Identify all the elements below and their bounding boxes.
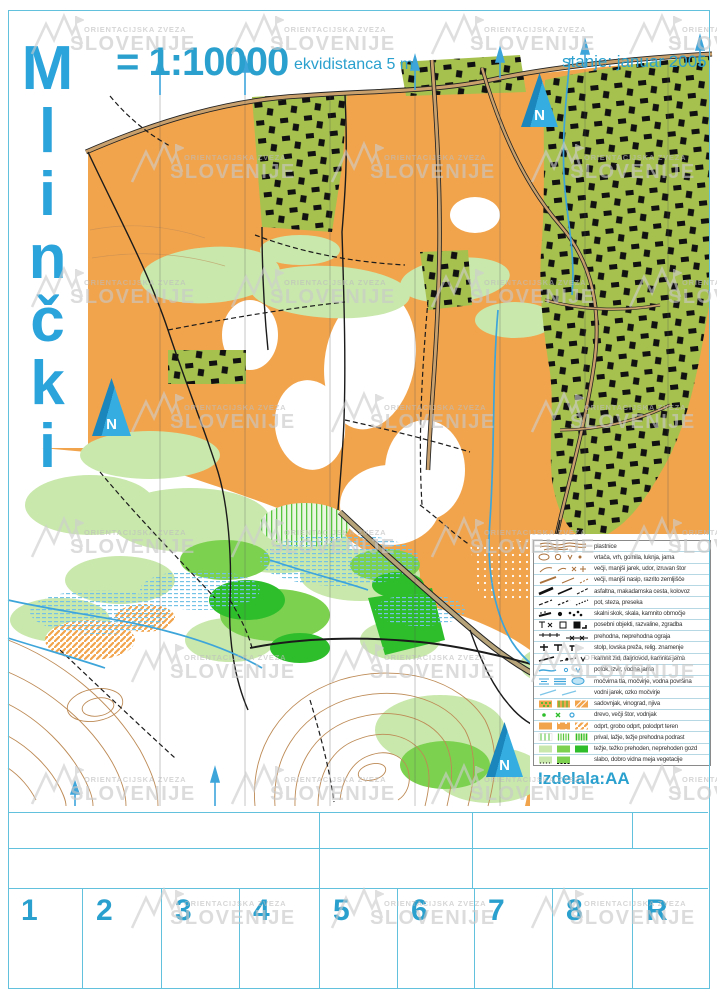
control-number: 8 [553, 889, 632, 928]
ditch-icon [534, 687, 594, 697]
legend-row: slabo, dobro vidna meja vegetacije [534, 755, 710, 765]
legend-row: odprt, grobo odprt, polodprt teren [534, 721, 710, 732]
objects-icon [534, 620, 594, 630]
control-cell: 6 [398, 889, 475, 988]
control-cell: 8 [553, 889, 633, 988]
control-number: 2 [83, 889, 161, 928]
legend-row: drevo, večji štor, vodnjak [534, 710, 710, 721]
undergrowth-icon [534, 732, 594, 742]
control-cell: R [633, 889, 708, 988]
legend-row: asfaltna, makadamska cesta, kolovoz [534, 586, 710, 597]
gully-icon [534, 564, 594, 574]
rock-icon [534, 609, 594, 619]
legend-box: plastnice vrtača, vrh, gomila, luknja, j… [533, 540, 711, 766]
map-scale: = 1:10000 [116, 40, 288, 85]
stream-icon [534, 665, 594, 675]
control-number: 7 [475, 889, 552, 928]
control-number: 6 [398, 889, 474, 928]
legend-row: večji, manjši jarek, udor, izruvan štor [534, 564, 710, 575]
contours-icon [534, 541, 594, 551]
paths-icon [534, 597, 594, 607]
card-cell [320, 813, 473, 848]
control-cell: 2 [83, 889, 162, 988]
roads-icon [534, 586, 594, 596]
card-cell [633, 813, 708, 848]
card-cell [320, 849, 473, 888]
control-cell: 3 [162, 889, 240, 988]
forest-icon [534, 744, 594, 754]
card-subheader-row [8, 848, 708, 888]
card-number-row: 1 2 3 4 5 6 7 8 R [8, 888, 708, 988]
equidistance-label: ekvidistanca 5 m [294, 56, 413, 74]
control-cell: 4 [240, 889, 320, 988]
legend-row: prival, lažje, težje prehodna podrast [534, 732, 710, 743]
card-cell [8, 813, 320, 848]
legend-row: potok, izvir, vodna jama [534, 665, 710, 676]
wall-icon [534, 654, 594, 664]
control-number: 5 [320, 889, 397, 928]
tree-icon [534, 710, 594, 720]
open-land-icon [534, 721, 594, 731]
control-number: R [633, 889, 708, 928]
control-number: 4 [240, 889, 319, 928]
control-cell: 1 [8, 889, 83, 988]
orchard-icon [534, 699, 594, 709]
tower-cross-icon [534, 642, 594, 652]
legend-row: skalni skok, skala, kamnito območje [534, 609, 710, 620]
control-cell: 5 [320, 889, 398, 988]
fence-icon [534, 631, 594, 641]
status-label: stanje: januar 2005 [562, 52, 707, 72]
card-header-row [8, 812, 708, 848]
map-title: Mlinčki [16, 34, 78, 484]
card-cell [473, 849, 708, 888]
credit-label: Izdelala:AA [538, 769, 630, 789]
control-number: 1 [8, 889, 82, 928]
depression-icon [534, 552, 594, 562]
legend-row: vodni jarek, ozko močvirje [534, 687, 710, 698]
legend-row: prehodna, neprehodna ograja [534, 631, 710, 642]
earthbank-icon [534, 575, 594, 585]
marsh-icon [534, 676, 594, 686]
control-number: 3 [162, 889, 239, 928]
legend-row: večji, manjši nasip, razrito zemljišče [534, 575, 710, 586]
legend-row: stolp, lovska preža, relig. znamenje [534, 642, 710, 653]
legend-row: vrtača, vrh, gomila, luknja, jama [534, 552, 710, 563]
legend-row: težje, težko prehoden, neprehoden gozd [534, 744, 710, 755]
legend-row: močvirna tla, močvirje, vodna površina [534, 676, 710, 687]
veg-boundary-icon [534, 755, 594, 765]
legend-row: kamnit zid, daljnovod, kamnita jama [534, 654, 710, 665]
legend-row: posebni objekti, razvaline, zgradba [534, 620, 710, 631]
card-cell [8, 849, 320, 888]
map-sheet: Mlinčki = 1:10000 ekvidistanca 5 m stanj… [0, 0, 717, 992]
card-cell [473, 813, 633, 848]
legend-row: sadovnjak, vinograd, njiva [534, 699, 710, 710]
control-cell: 7 [475, 889, 553, 988]
legend-row: plastnice [534, 541, 710, 552]
legend-row: pot, steza, preseka [534, 597, 710, 608]
